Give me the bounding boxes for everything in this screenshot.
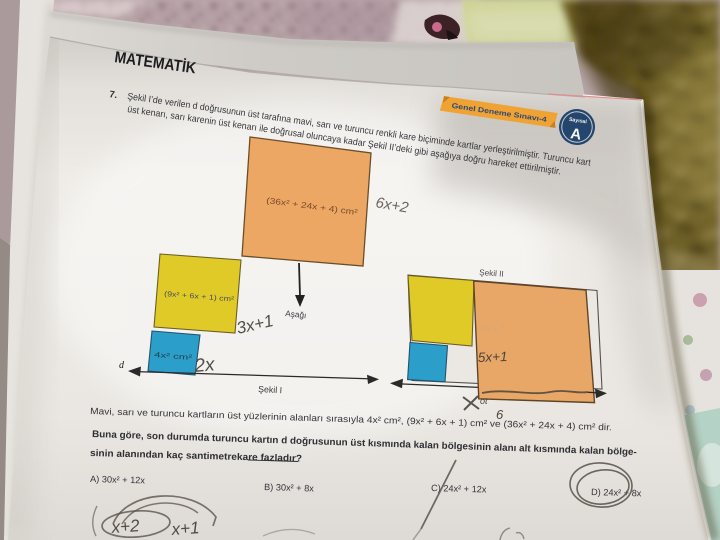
svg-text:7.: 7.: [109, 89, 118, 101]
svg-text:Şekil I: Şekil I: [258, 384, 282, 395]
svg-text:D) 24x² + 8x: D) 24x² + 8x: [591, 487, 642, 498]
svg-text:5x+1: 5x+1: [478, 349, 508, 365]
svg-text:4x+1: 4x+1: [479, 321, 506, 337]
svg-text:Şekil II: Şekil II: [479, 268, 504, 279]
svg-text:ot: ot: [480, 396, 488, 406]
svg-text:B) 30x² + 8x: B) 30x² + 8x: [264, 482, 314, 493]
svg-text:x+2: x+2: [110, 516, 141, 537]
svg-text:A) 30x² + 12x: A) 30x² + 12x: [90, 474, 146, 485]
svg-text:x+1: x+1: [170, 518, 200, 539]
